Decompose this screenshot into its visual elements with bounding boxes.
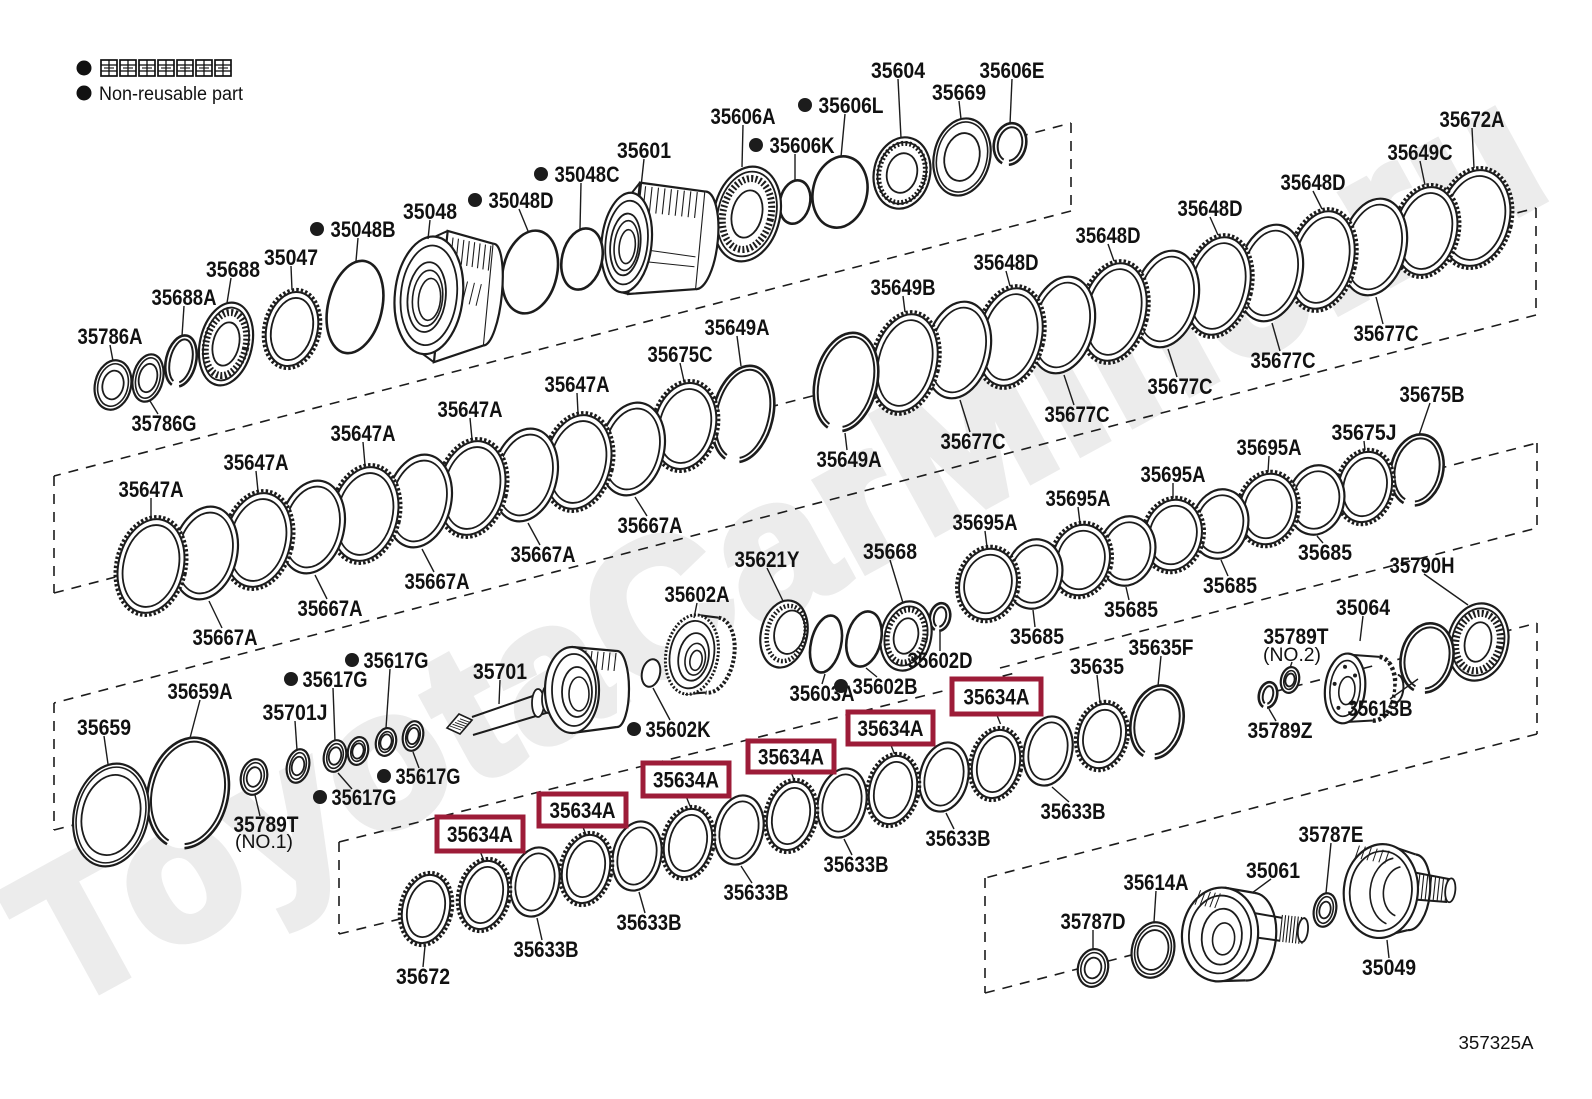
svg-text:35659: 35659 bbox=[77, 715, 131, 740]
svg-text:35672A: 35672A bbox=[1440, 107, 1505, 132]
svg-text:35701J: 35701J bbox=[263, 700, 328, 725]
svg-text:35061: 35061 bbox=[1246, 858, 1300, 883]
svg-text:35633B: 35633B bbox=[824, 852, 889, 877]
svg-text:35685: 35685 bbox=[1298, 540, 1352, 565]
svg-text:35602A: 35602A bbox=[665, 582, 730, 607]
svg-text:35649C: 35649C bbox=[1388, 140, 1453, 165]
svg-text:35786A: 35786A bbox=[78, 324, 143, 349]
svg-text:35647A: 35647A bbox=[438, 397, 503, 422]
svg-text:35617G: 35617G bbox=[332, 785, 397, 810]
svg-text:35602K: 35602K bbox=[646, 717, 711, 742]
svg-text:35633B: 35633B bbox=[1041, 799, 1106, 824]
svg-text:35634A: 35634A bbox=[653, 768, 719, 793]
svg-text:35604: 35604 bbox=[871, 58, 926, 83]
svg-text:35048B: 35048B bbox=[331, 217, 396, 242]
svg-text:35667A: 35667A bbox=[193, 625, 258, 650]
svg-text:35649A: 35649A bbox=[705, 315, 770, 340]
svg-text:35617G: 35617G bbox=[396, 764, 461, 789]
svg-text:35601: 35601 bbox=[617, 138, 671, 163]
svg-text:35634A: 35634A bbox=[550, 798, 616, 823]
svg-text:(NO.1): (NO.1) bbox=[235, 832, 293, 853]
svg-text:35648D: 35648D bbox=[1178, 196, 1243, 221]
svg-text:357325A: 357325A bbox=[1459, 1033, 1534, 1053]
svg-text:35701: 35701 bbox=[473, 659, 527, 684]
svg-text:35602B: 35602B bbox=[853, 674, 918, 699]
svg-text:35617G: 35617G bbox=[303, 667, 368, 692]
svg-text:35675J: 35675J bbox=[1332, 420, 1397, 445]
svg-text:35634A: 35634A bbox=[447, 822, 513, 847]
svg-text:35685: 35685 bbox=[1010, 624, 1064, 649]
svg-text:35606A: 35606A bbox=[711, 104, 776, 129]
svg-text:35667A: 35667A bbox=[511, 542, 576, 567]
svg-text:Non-reusable part: Non-reusable part bbox=[99, 84, 244, 105]
svg-text:35606E: 35606E bbox=[980, 58, 1045, 83]
svg-text:35634A: 35634A bbox=[858, 716, 924, 741]
svg-text:35667A: 35667A bbox=[405, 569, 470, 594]
svg-text:35648D: 35648D bbox=[1076, 223, 1141, 248]
svg-text:35685: 35685 bbox=[1203, 573, 1257, 598]
svg-text:35635F: 35635F bbox=[1129, 635, 1194, 660]
svg-text:35634A: 35634A bbox=[758, 745, 824, 770]
svg-text:35634A: 35634A bbox=[964, 685, 1030, 710]
svg-text:35606K: 35606K bbox=[770, 133, 835, 158]
svg-text:35695A: 35695A bbox=[1141, 462, 1206, 487]
svg-text:35675B: 35675B bbox=[1400, 382, 1465, 407]
svg-text:35787D: 35787D bbox=[1061, 909, 1126, 934]
svg-text:35633B: 35633B bbox=[514, 937, 579, 962]
svg-text:35647A: 35647A bbox=[224, 450, 289, 475]
svg-text:35667A: 35667A bbox=[298, 596, 363, 621]
svg-text:35677C: 35677C bbox=[1148, 374, 1213, 399]
svg-text:35649A: 35649A bbox=[817, 447, 882, 472]
svg-text:35635: 35635 bbox=[1070, 654, 1124, 679]
svg-text:35688A: 35688A bbox=[152, 285, 217, 310]
svg-text:35790H: 35790H bbox=[1390, 553, 1455, 578]
svg-text:35677C: 35677C bbox=[941, 429, 1006, 454]
svg-text:35789Z: 35789Z bbox=[1248, 718, 1313, 743]
svg-text:35048C: 35048C bbox=[555, 162, 620, 187]
svg-text:35633B: 35633B bbox=[617, 910, 682, 935]
svg-text:35602D: 35602D bbox=[908, 648, 973, 673]
svg-text:35685: 35685 bbox=[1104, 597, 1158, 622]
svg-text:35787E: 35787E bbox=[1299, 822, 1364, 847]
svg-text:35048: 35048 bbox=[403, 199, 457, 224]
svg-text:(NO.2): (NO.2) bbox=[1263, 645, 1321, 666]
svg-text:35695A: 35695A bbox=[1046, 486, 1111, 511]
svg-text:35672: 35672 bbox=[396, 964, 450, 989]
svg-text:35606L: 35606L bbox=[819, 93, 884, 118]
svg-text:35677C: 35677C bbox=[1045, 402, 1110, 427]
svg-text:35613B: 35613B bbox=[1348, 696, 1413, 721]
svg-text:35668: 35668 bbox=[863, 539, 917, 564]
svg-text:35659A: 35659A bbox=[168, 679, 233, 704]
svg-text:35695A: 35695A bbox=[1237, 435, 1302, 460]
svg-text:35633B: 35633B bbox=[926, 826, 991, 851]
svg-text:35617G: 35617G bbox=[364, 648, 429, 673]
svg-text:35048D: 35048D bbox=[489, 188, 554, 213]
svg-text:35647A: 35647A bbox=[119, 477, 184, 502]
svg-text:35688: 35688 bbox=[206, 257, 260, 282]
svg-text:35695A: 35695A bbox=[953, 510, 1018, 535]
svg-text:35649B: 35649B bbox=[871, 275, 936, 300]
svg-text:35786G: 35786G bbox=[132, 411, 197, 436]
svg-text:35621Y: 35621Y bbox=[735, 547, 800, 572]
svg-text:35648D: 35648D bbox=[974, 250, 1039, 275]
svg-text:35064: 35064 bbox=[1336, 595, 1391, 620]
svg-text:35614A: 35614A bbox=[1124, 870, 1189, 895]
svg-text:35667A: 35667A bbox=[618, 513, 683, 538]
svg-text:35669: 35669 bbox=[932, 80, 986, 105]
svg-text:35047: 35047 bbox=[264, 245, 318, 270]
svg-text:35647A: 35647A bbox=[331, 421, 396, 446]
svg-text:35647A: 35647A bbox=[545, 372, 610, 397]
svg-text:35648D: 35648D bbox=[1281, 170, 1346, 195]
svg-text:35677C: 35677C bbox=[1251, 348, 1316, 373]
svg-text:35049: 35049 bbox=[1362, 955, 1416, 980]
svg-text:35677C: 35677C bbox=[1354, 321, 1419, 346]
svg-text:35633B: 35633B bbox=[724, 880, 789, 905]
svg-text:35675C: 35675C bbox=[648, 342, 713, 367]
